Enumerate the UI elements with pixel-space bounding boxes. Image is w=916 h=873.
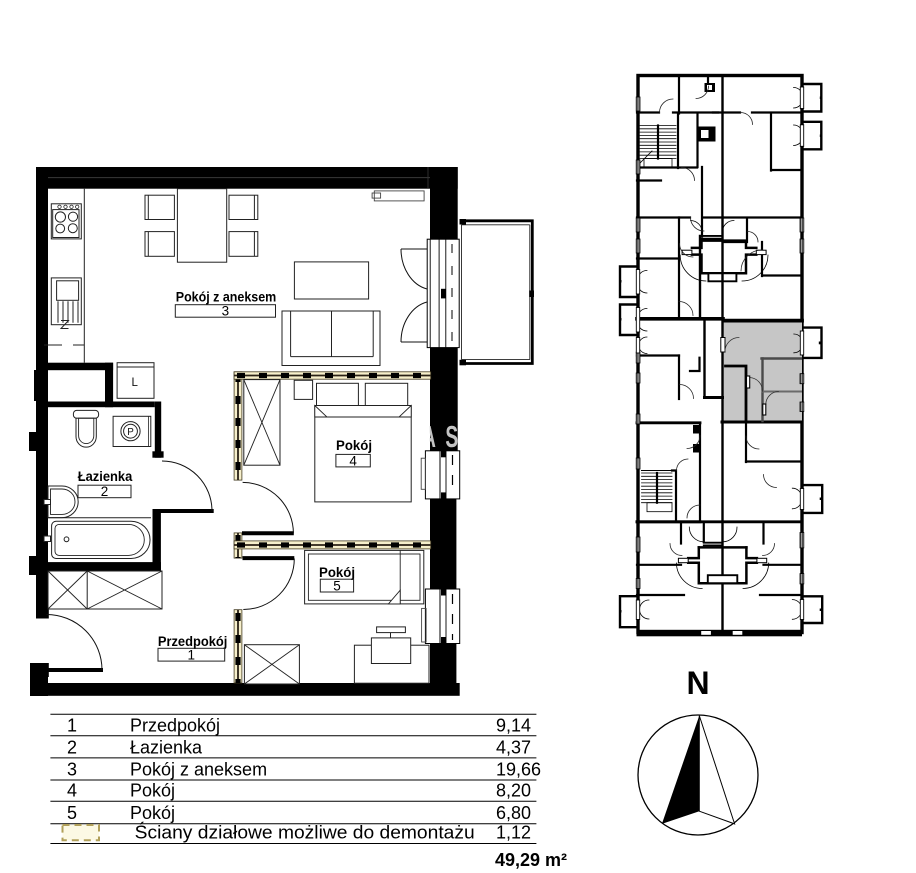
svg-text:L: L [132, 377, 139, 389]
svg-text:19,66: 19,66 [496, 759, 541, 779]
svg-text:4: 4 [349, 453, 357, 468]
svg-text:P: P [127, 427, 134, 438]
svg-text:Przedpokój: Przedpokój [130, 716, 220, 736]
svg-text:Pokój: Pokój [336, 438, 372, 454]
svg-text:1,12: 1,12 [496, 823, 531, 843]
svg-text:3: 3 [222, 303, 230, 318]
svg-text:Łazienka: Łazienka [78, 469, 133, 485]
svg-text:N: N [686, 665, 709, 701]
svg-text:Pokój: Pokój [130, 781, 175, 801]
svg-text:5: 5 [67, 803, 77, 823]
svg-text:Pokój: Pokój [130, 803, 175, 823]
svg-text:1: 1 [67, 716, 77, 736]
svg-text:6,80: 6,80 [496, 803, 531, 823]
svg-text:8,20: 8,20 [496, 781, 531, 801]
svg-text:Ściany działowe możliwe do dem: Ściany działowe możliwe do demontażu [135, 822, 475, 843]
svg-text:3: 3 [67, 759, 77, 779]
svg-text:Pokój z aneksem: Pokój z aneksem [130, 759, 267, 779]
svg-text:1: 1 [188, 648, 196, 663]
svg-text:2: 2 [101, 484, 109, 499]
svg-text:2: 2 [67, 737, 77, 757]
svg-text:Łazienka: Łazienka [130, 737, 203, 757]
svg-text:4: 4 [67, 781, 77, 801]
svg-text:4,37: 4,37 [496, 737, 531, 757]
svg-text:5: 5 [333, 578, 341, 593]
svg-text:9,14: 9,14 [496, 716, 531, 736]
svg-text:49,29 m²: 49,29 m² [495, 850, 567, 870]
